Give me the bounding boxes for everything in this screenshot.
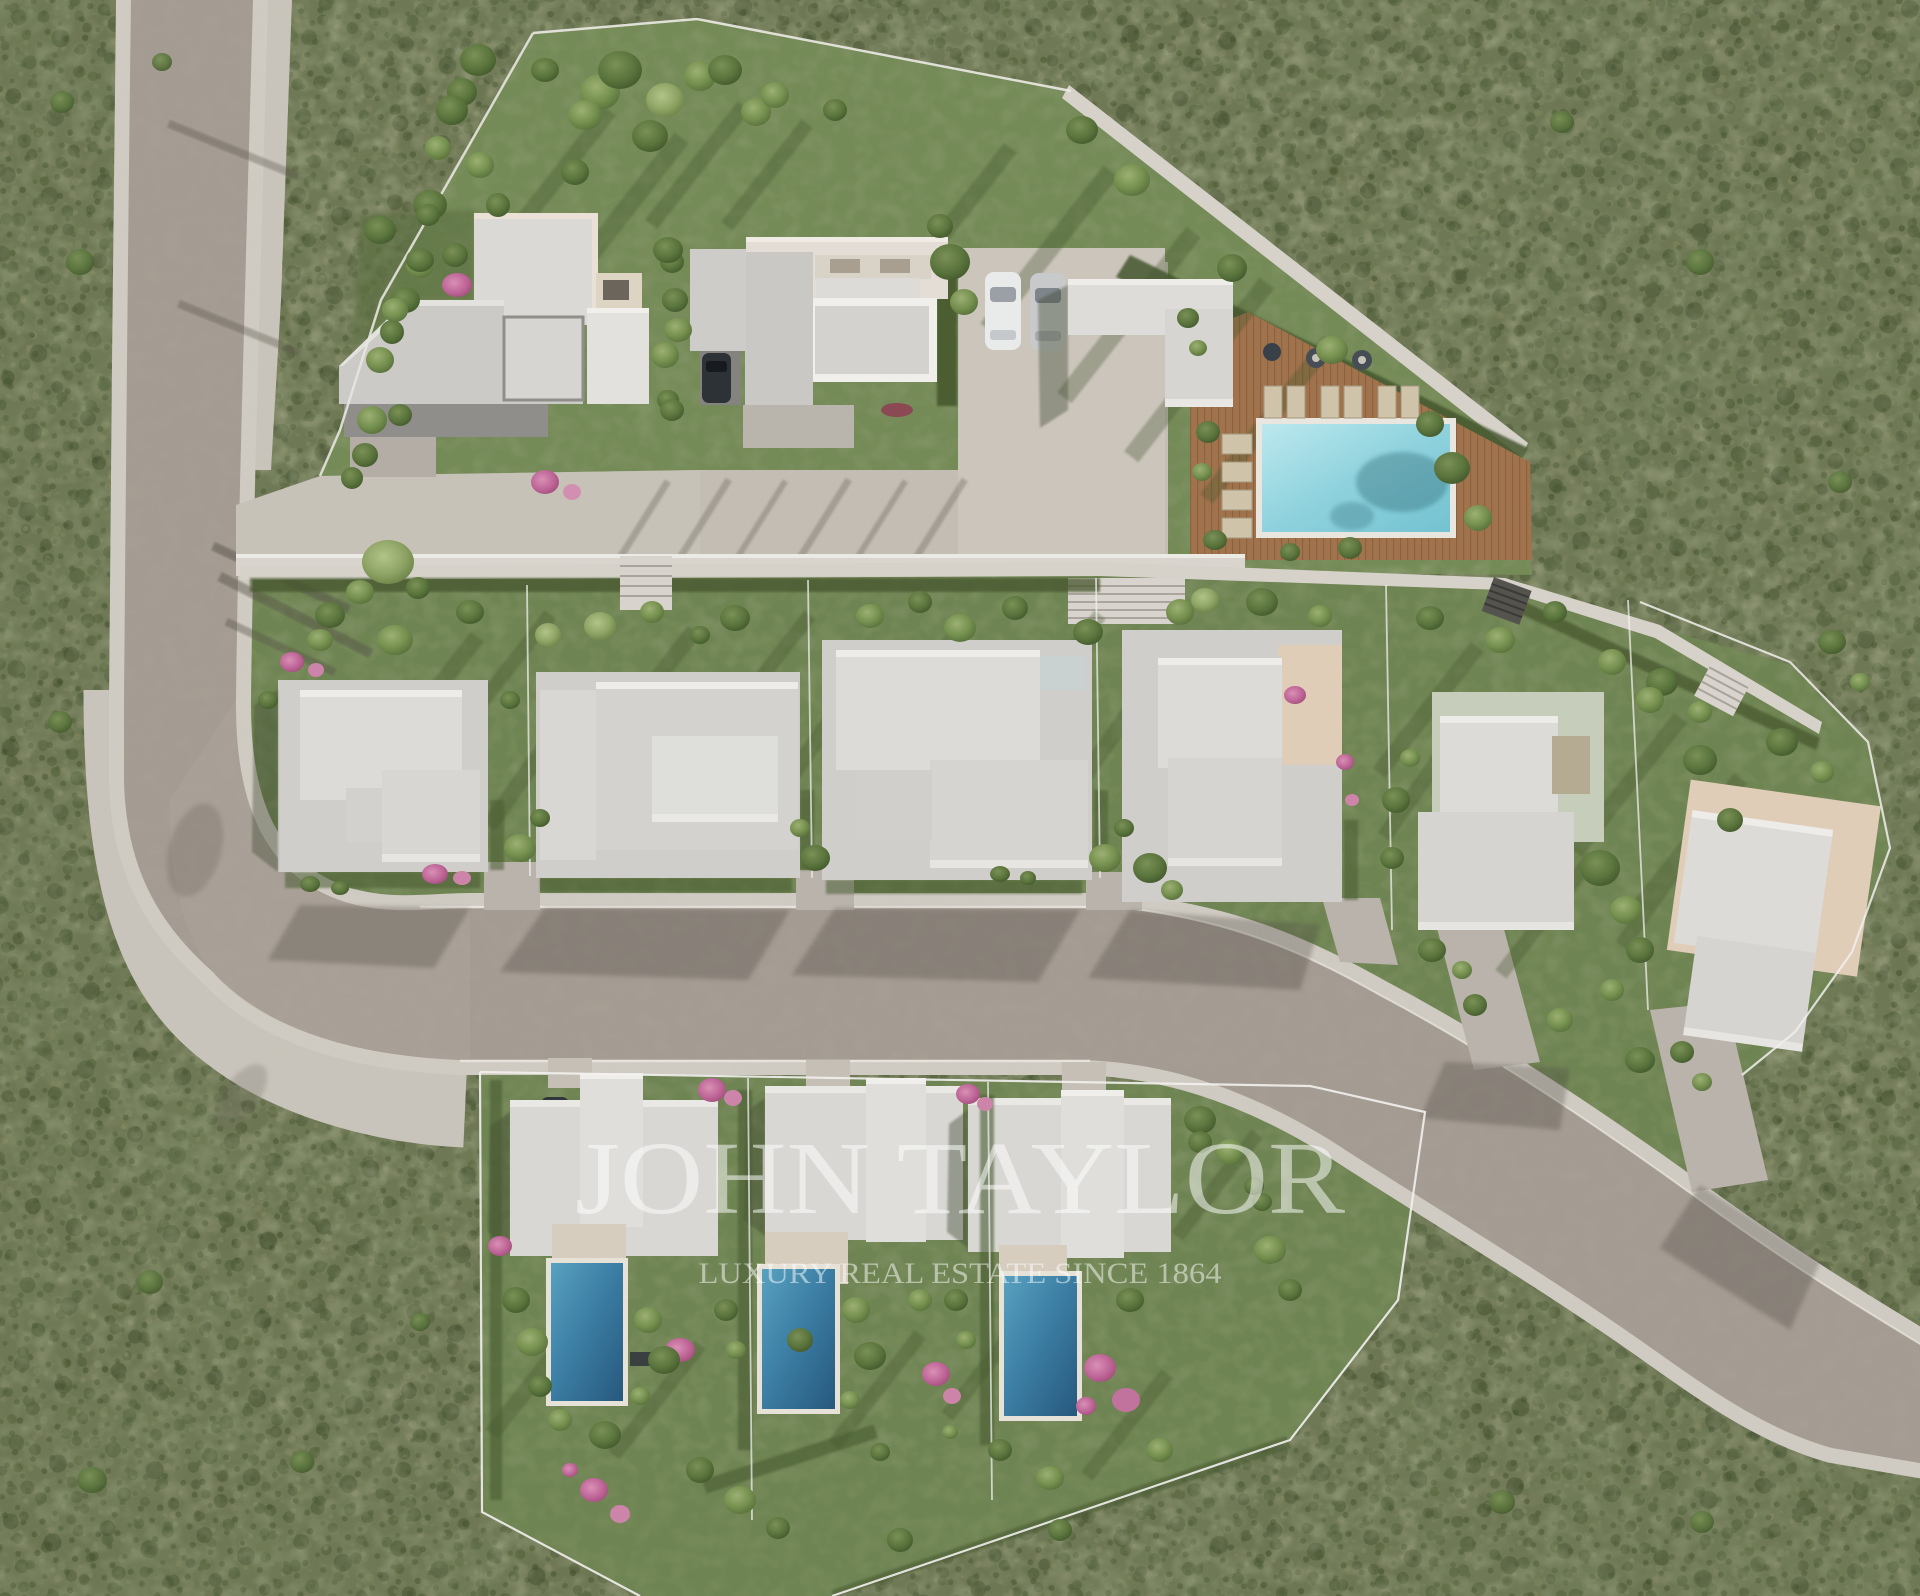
svg-text:JOHN TAYLOR: JOHN TAYLOR xyxy=(575,1121,1346,1236)
svg-text:LUXURY REAL ESTATE SINCE 1864: LUXURY REAL ESTATE SINCE 1864 xyxy=(699,1257,1222,1290)
